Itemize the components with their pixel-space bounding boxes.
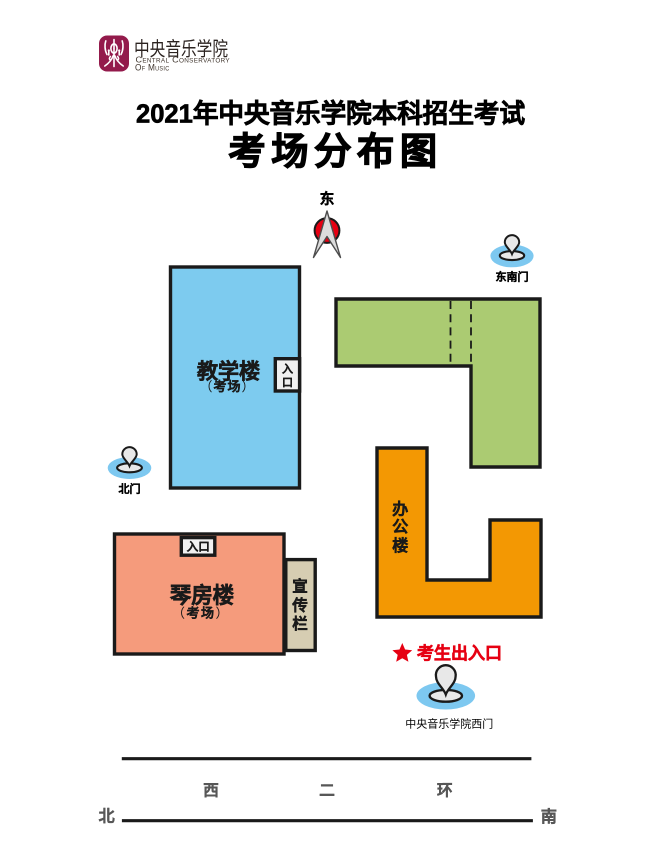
svg-text:考场分布图: 考场分布图 — [228, 131, 437, 172]
svg-text:2021年中央音乐学院本科招生考试: 2021年中央音乐学院本科招生考试 — [136, 99, 525, 129]
svg-text:Of Music: Of Music — [135, 63, 170, 73]
svg-text:二: 二 — [319, 783, 335, 800]
svg-text:东: 东 — [320, 190, 335, 208]
svg-text:琴房楼: 琴房楼 — [170, 583, 234, 608]
svg-text:办: 办 — [392, 499, 408, 518]
svg-text:北: 北 — [99, 807, 115, 825]
svg-text:（考场）: （考场） — [199, 379, 255, 394]
svg-text:传: 传 — [291, 595, 308, 614]
svg-text:环: 环 — [437, 782, 453, 800]
svg-text:中央音乐学院西门: 中央音乐学院西门 — [405, 717, 493, 731]
svg-text:楼: 楼 — [392, 536, 408, 555]
svg-text:西: 西 — [203, 782, 219, 800]
svg-text:入口: 入口 — [187, 541, 210, 554]
svg-text:公: 公 — [392, 518, 408, 536]
svg-text:宣: 宣 — [292, 577, 308, 596]
svg-text:入: 入 — [282, 363, 293, 376]
svg-text:考生出入口: 考生出入口 — [416, 643, 502, 663]
svg-text:（考场）: （考场） — [172, 606, 230, 621]
svg-text:南: 南 — [541, 807, 557, 826]
svg-text:东南门: 东南门 — [496, 270, 529, 284]
svg-text:口: 口 — [282, 376, 293, 389]
svg-text:栏: 栏 — [292, 614, 308, 633]
svg-text:北门: 北门 — [119, 482, 141, 496]
